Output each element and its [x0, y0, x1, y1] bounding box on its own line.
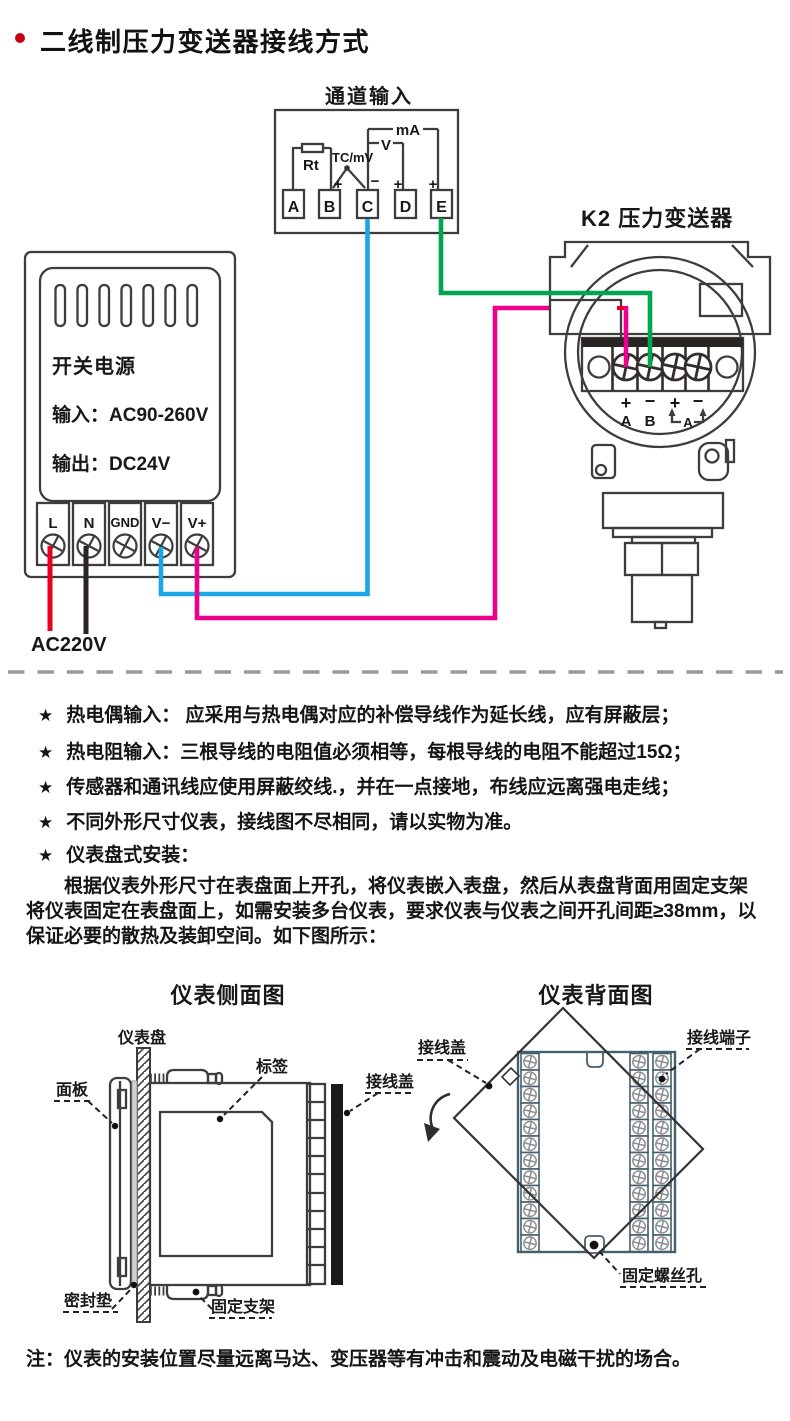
mains-voltage-label: AC220V [31, 634, 107, 656]
terminal-a-label: A [288, 199, 300, 216]
v-label: V [381, 137, 391, 154]
seal-label: 密封垫 [63, 1291, 112, 1310]
star-icon: ★ [38, 743, 53, 763]
transmitter-title: K2 压力变送器 [581, 206, 733, 231]
note-item-4: ★ 不同外形尺寸仪表，接线图不尽相同，请以实物为准。 [38, 807, 522, 834]
side-view-figure: 仪表侧面图 仪表盘 [54, 983, 414, 1322]
side-cover-label: 接线盖 [366, 1072, 414, 1091]
note-item-3: ★ 传感器和通讯线应使用屏蔽绞线.，并在一点接地，布线应远离强电走线； [38, 772, 680, 799]
channel-input-box: 通道输入 A B C D E [275, 84, 458, 233]
power-terminal-gnd: GND [111, 515, 140, 530]
instrument-body [150, 1083, 310, 1285]
front-panel-label: 面板 [56, 1080, 89, 1099]
transmitter-cover-outer [565, 257, 755, 447]
power-terminal-l: L [48, 515, 57, 532]
power-terminal-strip: L N GND V− V+ [37, 503, 213, 565]
back-cover-label: 接线盖 [418, 1038, 466, 1057]
note-text: 热电阻输入：三根导线的电阻值必须相等，每根导线的电阻不能超过15Ω； [66, 737, 691, 764]
document-page: 通道输入 A B C D E [0, 0, 790, 1421]
terminal-cover-bar [331, 1084, 343, 1285]
power-terminal-vminus: V− [152, 515, 171, 532]
loop-wire-magenta [197, 308, 551, 618]
note-item-1: ★ 热电偶输入： 应采用与热电偶对应的补偿导线作为延长线，应有屏蔽层； [38, 700, 680, 727]
note-text: 热电偶输入： 应采用与热电偶对应的补偿导线作为延长线，应有屏蔽层； [66, 700, 679, 727]
terminal-d-label: D [400, 199, 412, 216]
tx-terminal-b: B [645, 413, 656, 430]
transmitter-terminal-strip [582, 338, 743, 391]
transmitter-housing [550, 242, 770, 334]
power-supply-box: 开关电源 输入：AC90-260V 输出：DC24V L N GND V− V+ [25, 252, 235, 577]
red-bullet-icon [15, 33, 25, 43]
terminal-e-label: E [436, 199, 447, 216]
rt-label: Rt [303, 157, 319, 174]
rotation-arrow [424, 1094, 450, 1142]
channel-terminals: A B C D E [283, 190, 452, 218]
pressure-transmitter: K2 压力变送器 + − + − A B [550, 206, 770, 628]
note-item-5: ★ 仪表盘式安装： [38, 840, 199, 867]
sign-minus-c: − [371, 173, 380, 190]
tx-terminal-a: A [621, 413, 632, 430]
note-text: 不同外形尺寸仪表，接线图不尽相同，请以实物为准。 [66, 807, 522, 834]
back-view-figure: 仪表背面图 [417, 983, 751, 1287]
star-icon: ★ [38, 813, 53, 833]
panel-label: 仪表盘 [117, 1028, 166, 1047]
fixing-screw-hole [590, 1241, 599, 1250]
terminals-label: 接线端子 [687, 1028, 751, 1047]
channel-input-title: 通道输入 [325, 84, 413, 108]
power-terminal-vplus: V+ [188, 515, 207, 532]
instrument-back-outline [518, 1052, 675, 1252]
bracket-label: 固定支架 [211, 1297, 275, 1316]
meter-label: A [683, 415, 693, 430]
seal-gasket [132, 1081, 137, 1287]
power-name: 开关电源 [52, 354, 136, 378]
side-view-title: 仪表侧面图 [169, 983, 285, 1008]
tc-mv-label: TC/mV [332, 150, 374, 165]
tx-sign-b: − [645, 391, 656, 411]
sign-plus-d: + [394, 176, 403, 193]
note-text: 传感器和通讯线应使用屏蔽绞线.，并在一点接地，布线应远离强电走线； [66, 772, 679, 799]
resistor-symbol [302, 144, 323, 152]
page-header: 二线制压力变送器接线方式 [15, 22, 370, 59]
terminal-b-label: B [324, 199, 336, 216]
note-text: 仪表盘式安装： [66, 840, 199, 867]
label-plate [160, 1112, 272, 1256]
tx-sign-a: + [621, 393, 632, 413]
tag-label: 标签 [255, 1057, 289, 1076]
mounting-panel [137, 1048, 150, 1322]
ma-label: mA [396, 122, 420, 139]
page-title: 二线制压力变送器接线方式 [40, 22, 370, 59]
sign-plus-b: + [334, 176, 343, 193]
install-paragraph: 根据仪表外形尺寸在表盘面上开孔，将仪表嵌入表盘，然后从表盘背面用固定支架将仪表固… [26, 874, 764, 949]
screw-hole-label: 固定螺丝孔 [622, 1266, 702, 1285]
bottom-bracket [150, 1285, 222, 1299]
star-icon: ★ [38, 706, 53, 726]
sign-plus-e: + [429, 176, 438, 193]
transmitter-process-connection [592, 440, 734, 628]
power-output-spec: 输出：DC24V [52, 452, 171, 475]
star-icon: ★ [38, 846, 53, 866]
power-input-spec: 输入：AC90-260V [52, 403, 209, 426]
terminal-c-label: C [362, 199, 374, 216]
tx-sign-d: − [693, 391, 704, 411]
star-icon: ★ [38, 778, 53, 798]
footer-note: 注：仪表的安装位置尽量远离马达、变压器等有冲击和震动及电磁干扰的场合。 [26, 1344, 776, 1371]
back-view-title: 仪表背面图 [537, 983, 653, 1008]
power-terminal-n: N [84, 515, 95, 532]
vent-slots [56, 285, 198, 326]
note-item-2: ★ 热电阻输入：三根导线的电阻值必须相等，每根导线的电阻不能超过15Ω； [38, 737, 692, 764]
